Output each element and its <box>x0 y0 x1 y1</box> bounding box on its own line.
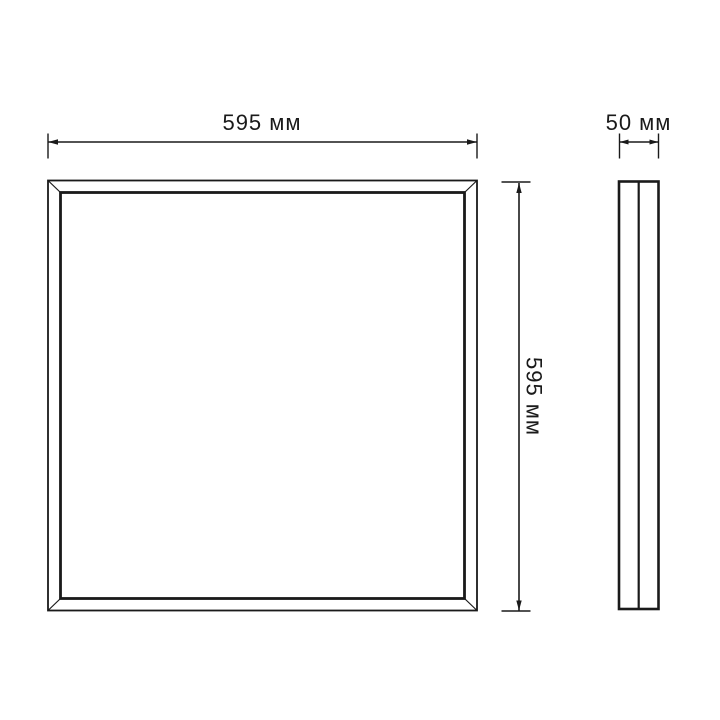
depth-dimension-label: 50 мм <box>606 110 672 135</box>
width-dimension: 595 мм <box>48 110 477 159</box>
technical-drawing-canvas: 595 мм 595 мм <box>0 0 720 720</box>
width-arrowhead-right-icon <box>467 139 477 144</box>
height-dimension: 595 мм <box>502 182 547 611</box>
front-view-outer-frame <box>48 181 477 611</box>
height-dimension-label: 595 мм <box>522 357 547 436</box>
front-view-corner-bevel-bottom-right <box>465 599 478 611</box>
front-view-corner-bevel-bottom-left <box>48 599 61 611</box>
front-view-inner-frame <box>61 193 465 599</box>
panel-side-view <box>619 182 659 610</box>
panel-front-view <box>48 181 477 611</box>
height-arrowhead-top-icon <box>516 183 521 193</box>
front-view-corner-bevel-top-left <box>48 181 61 193</box>
depth-arrowhead-right-icon <box>650 140 659 145</box>
depth-arrowhead-left-icon <box>620 140 629 145</box>
depth-dimension: 50 мм <box>606 110 672 159</box>
front-view-corner-bevel-top-right <box>465 181 478 193</box>
width-dimension-label: 595 мм <box>222 110 301 135</box>
drawing-root: 595 мм 595 мм <box>48 110 671 611</box>
width-arrowhead-left-icon <box>48 139 58 144</box>
height-arrowhead-bottom-icon <box>516 601 521 611</box>
